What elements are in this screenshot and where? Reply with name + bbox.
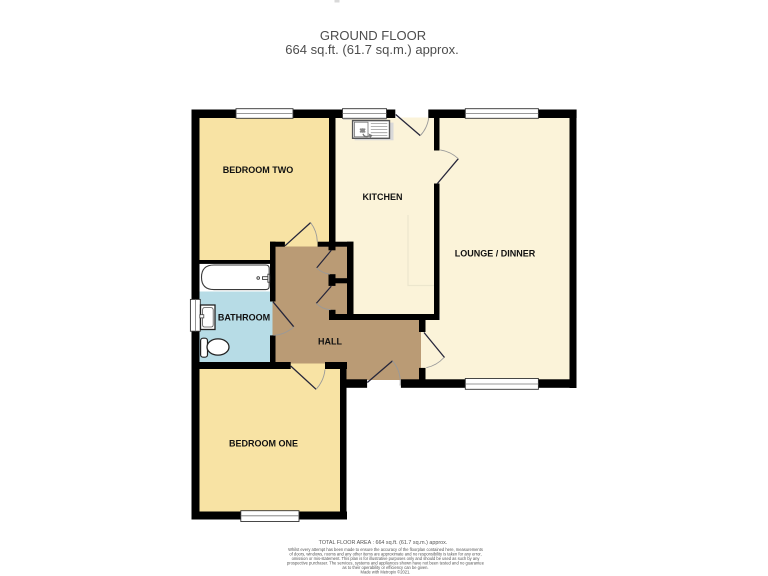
svg-text:LOUNGE / DINNER: LOUNGE / DINNER <box>455 249 536 259</box>
svg-text:GROUND FLOOR: GROUND FLOOR <box>320 28 426 43</box>
svg-text:KITCHEN: KITCHEN <box>363 192 403 202</box>
svg-text:664 sq.ft. (61.7 sq.m.) approx: 664 sq.ft. (61.7 sq.m.) approx. <box>285 42 458 57</box>
svg-text:BEDROOM TWO: BEDROOM TWO <box>223 165 294 175</box>
svg-text:Made with Metropix ©2021.: Made with Metropix ©2021. <box>361 570 411 575</box>
svg-text:HALL: HALL <box>318 337 342 347</box>
svg-text:TOTAL FLOOR AREA : 664 sq.ft.: TOTAL FLOOR AREA : 664 sq.ft. (61.7 sq.m… <box>319 540 448 546</box>
svg-text:BEDROOM ONE: BEDROOM ONE <box>229 439 298 449</box>
svg-text:BATHROOM: BATHROOM <box>218 313 270 323</box>
